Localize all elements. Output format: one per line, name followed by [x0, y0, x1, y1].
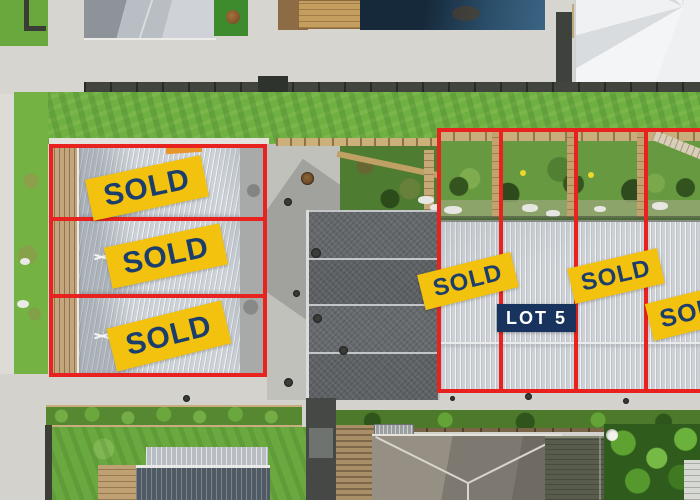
debris — [418, 196, 434, 204]
roof-section — [306, 352, 438, 400]
fence-corner — [24, 26, 46, 31]
drain-cover — [301, 172, 314, 185]
wooden-platform — [298, 0, 364, 29]
grass-berm — [14, 92, 48, 388]
drain-cover — [339, 346, 348, 355]
satellite-dish — [606, 429, 618, 441]
lot-divider — [574, 128, 578, 393]
gutter-line — [306, 210, 309, 400]
fence — [556, 12, 572, 82]
wood-fence — [336, 425, 376, 500]
neighbour-roof-lower — [136, 468, 270, 500]
lot-divider — [49, 217, 267, 221]
roof-ridge — [467, 482, 469, 500]
drain-cover — [313, 314, 322, 323]
roof-section — [306, 210, 438, 258]
pool-shadow — [452, 6, 480, 21]
pebble — [17, 300, 29, 308]
shed-detail — [309, 428, 333, 458]
neighbour-roof-upper — [146, 447, 268, 467]
pebble — [20, 258, 30, 265]
drain-cover — [183, 395, 190, 402]
aerial-photo: SOLD SOLD SOLD SOLD SOLD SOLD LOT 5 — [0, 0, 700, 500]
lot-5-badge-label: LOT 5 — [506, 308, 567, 329]
wooden-deck — [98, 465, 140, 500]
white-marquee — [574, 0, 700, 82]
fence — [45, 425, 52, 500]
neighbour-house-roof — [84, 0, 216, 40]
tree-stump — [226, 10, 240, 24]
drain-cover — [525, 393, 532, 400]
center-unit-roofs — [306, 210, 438, 400]
concrete — [0, 46, 48, 94]
lot-5-badge: LOT 5 — [497, 304, 576, 332]
wood-rail — [276, 138, 438, 146]
fence-structure — [258, 76, 288, 92]
drain-cover — [284, 198, 292, 206]
drain-cover — [284, 378, 293, 387]
roof-section — [306, 304, 438, 352]
boundary-fence — [84, 82, 700, 92]
light-structure — [684, 460, 700, 500]
roof-ridge — [599, 436, 601, 500]
hedge-planter — [46, 405, 302, 427]
lot-divider — [49, 294, 267, 298]
drain-cover — [293, 290, 300, 297]
drain-cover — [623, 398, 629, 404]
drain-cover — [450, 396, 455, 401]
drain-cover — [311, 248, 321, 258]
